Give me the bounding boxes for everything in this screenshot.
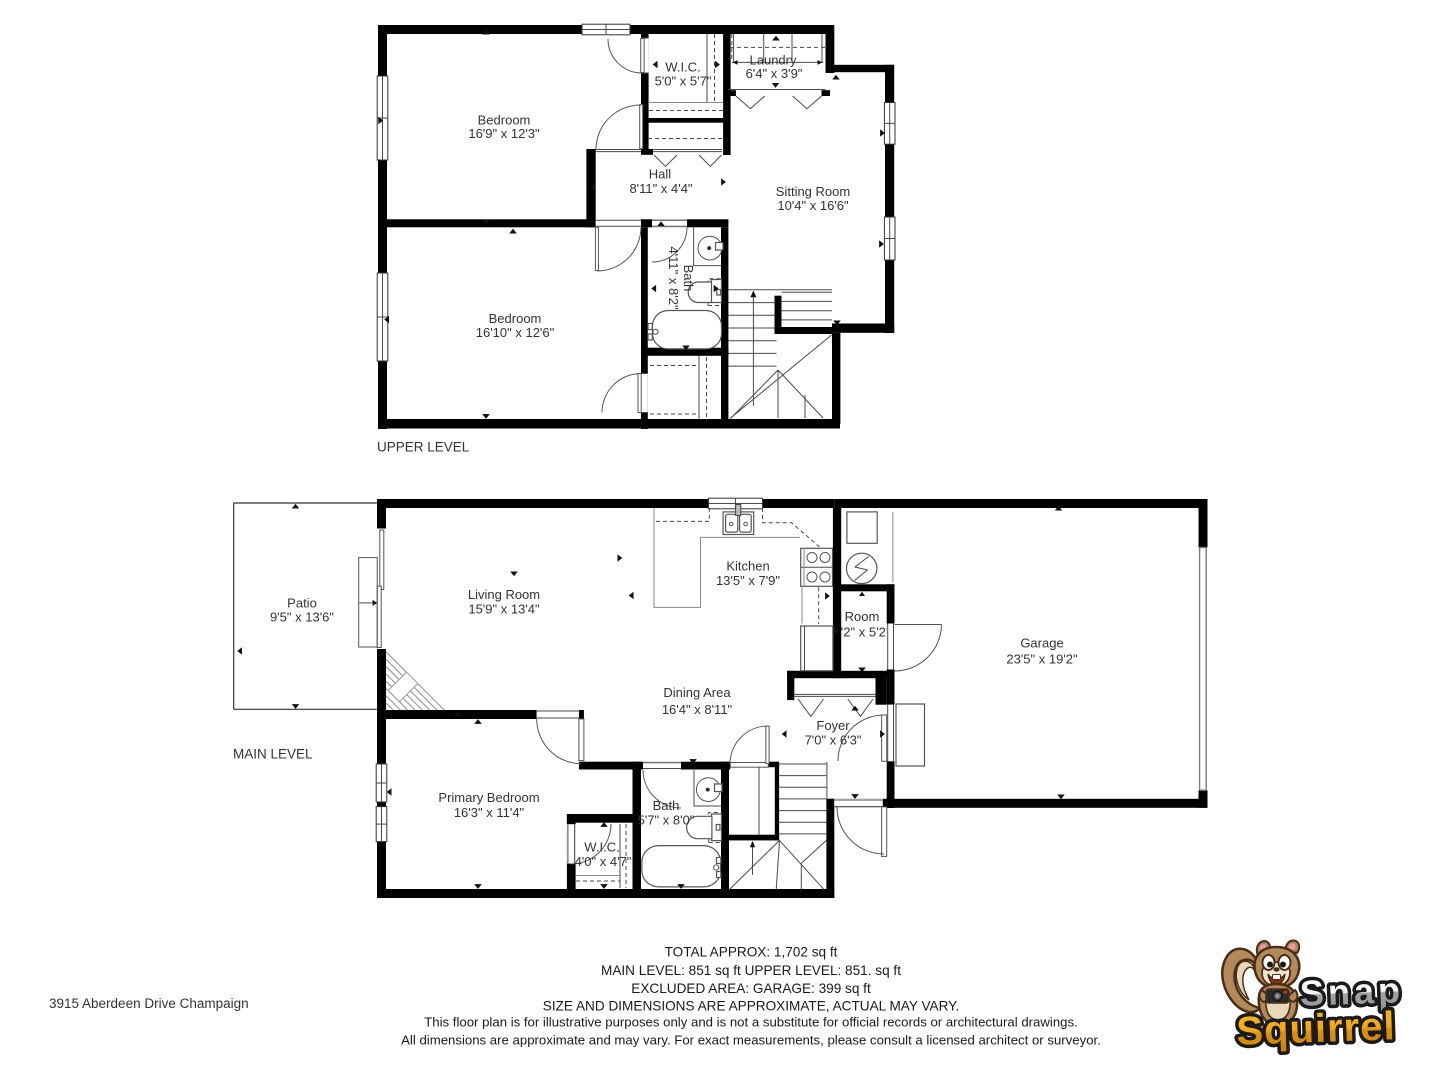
svg-text:Hall: Hall	[649, 167, 672, 182]
svg-text:3915 Aberdeen Drive Champaign: 3915 Aberdeen Drive Champaign	[49, 996, 249, 1011]
svg-text:Bath: Bath	[653, 798, 680, 813]
svg-text:4'11" x 8'2": 4'11" x 8'2"	[666, 246, 681, 309]
svg-text:15'9" x 13'4": 15'9" x 13'4"	[468, 602, 540, 617]
svg-text:Sitting Room: Sitting Room	[776, 184, 850, 199]
svg-text:TOTAL APPROX: 1,702 sq ft: TOTAL APPROX: 1,702 sq ft	[665, 945, 838, 960]
svg-text:Bath: Bath	[681, 265, 696, 292]
svg-text:SIZE AND DIMENSIONS ARE APPROX: SIZE AND DIMENSIONS ARE APPROXIMATE, ACT…	[543, 999, 959, 1014]
svg-text:MAIN LEVEL: MAIN LEVEL	[233, 747, 313, 762]
svg-text:W.I.C.: W.I.C.	[584, 840, 619, 855]
svg-text:16'3" x 11'4": 16'3" x 11'4"	[454, 805, 525, 820]
svg-text:10'4" x 16'6": 10'4" x 16'6"	[777, 198, 849, 213]
svg-text:16'9" x 12'3": 16'9" x 12'3"	[468, 126, 540, 141]
svg-text:Living Room: Living Room	[468, 587, 540, 602]
svg-text:23'5" x 19'2": 23'5" x 19'2"	[1006, 652, 1078, 667]
svg-text:Kitchen: Kitchen	[726, 559, 769, 574]
svg-text:16'4" x 8'11": 16'4" x 8'11"	[662, 702, 733, 717]
svg-text:Foyer: Foyer	[816, 718, 850, 733]
svg-text:4'0" x 4'7": 4'0" x 4'7"	[575, 854, 632, 869]
svg-text:All dimensions are approximate: All dimensions are approximate and may v…	[401, 1033, 1101, 1048]
svg-text:Garage: Garage	[1020, 636, 1063, 651]
svg-text:Primary Bedroom: Primary Bedroom	[438, 790, 539, 805]
svg-text:3'2" x 5'2": 3'2" x 5'2"	[834, 625, 891, 640]
svg-text:9'5" x 13'6": 9'5" x 13'6"	[270, 610, 334, 625]
svg-text:W.I.C.: W.I.C.	[665, 60, 700, 75]
svg-text:This floor plan is for illustr: This floor plan is for illustrative purp…	[424, 1015, 1078, 1030]
svg-text:8'11" x 4'4": 8'11" x 4'4"	[629, 181, 692, 196]
svg-text:16'10" x 12'6": 16'10" x 12'6"	[476, 325, 555, 340]
svg-text:UPPER LEVEL: UPPER LEVEL	[377, 440, 470, 455]
svg-text:13'5" x 7'9": 13'5" x 7'9"	[716, 573, 780, 588]
svg-text:6'4" x 3'9": 6'4" x 3'9"	[746, 66, 803, 81]
svg-text:EXCLUDED AREA: GARAGE: 399 sq: EXCLUDED AREA: GARAGE: 399 sq ft	[631, 981, 871, 996]
svg-text:Squirrel: Squirrel	[1236, 1004, 1397, 1054]
svg-text:5'0" x 5'7": 5'0" x 5'7"	[655, 74, 712, 89]
svg-text:MAIN LEVEL: 851 sq ft UPPER LE: MAIN LEVEL: 851 sq ft UPPER LEVEL: 851. …	[601, 963, 901, 978]
svg-text:7'0" x 6'3": 7'0" x 6'3"	[805, 733, 862, 748]
svg-text:Patio: Patio	[287, 596, 317, 611]
svg-text:Dining Area: Dining Area	[663, 685, 731, 700]
svg-text:Bedroom: Bedroom	[489, 311, 542, 326]
svg-text:Room: Room	[845, 609, 880, 624]
svg-text:5'7" x 8'0": 5'7" x 8'0"	[638, 813, 695, 828]
